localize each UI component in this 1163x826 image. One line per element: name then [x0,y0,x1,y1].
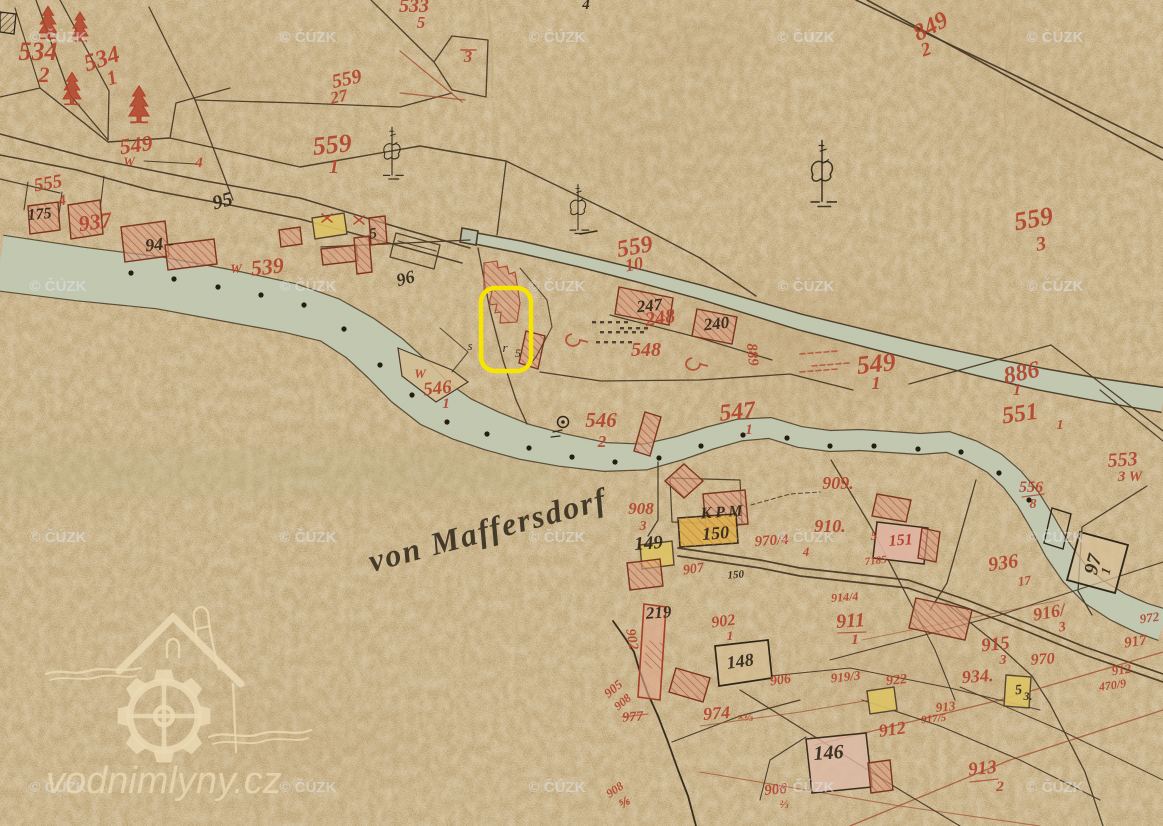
svg-text:936: 936 [987,550,1020,576]
svg-text:© ČÚZK: © ČÚZK [529,28,586,46]
svg-text:3: 3 [999,653,1007,668]
svg-text:© ČÚZK: © ČÚZK [1027,528,1084,546]
svg-text:972: 972 [1139,609,1161,627]
svg-text:915: 915 [980,633,1011,657]
svg-text:914/4: 914/4 [831,589,859,605]
svg-text:© ČÚZK: © ČÚZK [1027,277,1084,295]
svg-text:5: 5 [871,528,878,543]
svg-text:907: 907 [682,561,706,579]
svg-text:889: 889 [743,343,761,367]
svg-text:551: 551 [1000,399,1039,430]
svg-text:2: 2 [995,779,1004,795]
svg-text:×⅓: ×⅓ [737,710,753,724]
svg-text:970: 970 [1030,650,1055,669]
svg-text:© ČÚZK: © ČÚZK [778,28,835,46]
svg-text:© ČÚZK: © ČÚZK [280,778,337,796]
svg-text:© ČÚZK: © ČÚZK [778,778,835,796]
svg-text:1: 1 [745,422,753,438]
svg-text:546: 546 [585,408,617,432]
svg-text:2: 2 [38,62,50,87]
svg-text:s: s [467,338,472,353]
svg-text:5: 5 [417,13,426,32]
svg-text:909.: 909. [822,473,854,493]
svg-text:917: 917 [1123,632,1148,651]
svg-text:1: 1 [727,628,734,643]
svg-text:548: 548 [631,339,661,361]
svg-text:912: 912 [877,717,907,741]
svg-text:© ČÚZK: © ČÚZK [280,277,337,295]
svg-text:146: 146 [813,741,844,765]
svg-text:W: W [230,261,243,276]
svg-text:150: 150 [701,522,729,544]
svg-text:934.: 934. [961,665,994,687]
svg-text:977: 977 [622,709,645,725]
svg-text:© ČÚZK: © ČÚZK [529,277,586,295]
svg-text:539: 539 [249,252,284,280]
svg-text:K P M: K P M [699,503,744,523]
svg-text:913: 913 [967,757,998,781]
svg-text:© ČÚZK: © ČÚZK [1027,28,1084,46]
svg-text:© ČÚZK: © ČÚZK [778,277,835,295]
svg-text:912: 912 [1111,661,1133,679]
svg-text:© ČÚZK: © ČÚZK [529,528,586,546]
svg-text:1: 1 [442,396,450,412]
svg-text:© ČÚZK: © ČÚZK [30,277,87,295]
svg-text:© ČÚZK: © ČÚZK [1027,778,1084,796]
svg-text:94 -: 94 - [144,233,174,256]
svg-text:5: 5 [515,346,521,360]
svg-text:4: 4 [802,544,810,559]
svg-text:974: 974 [702,702,730,724]
svg-text:3 W: 3 W [1117,469,1144,485]
svg-text:149: 149 [634,532,664,555]
svg-text:⅔: ⅔ [780,797,789,811]
svg-text:© ČÚZK: © ČÚZK [30,528,87,546]
svg-text:1: 1 [329,156,339,178]
svg-text:W: W [123,154,136,169]
svg-text:© ČÚZK: © ČÚZK [529,778,586,796]
svg-text:911: 911 [835,609,865,633]
svg-text:219: 219 [644,602,672,623]
svg-text:906: 906 [769,672,792,690]
svg-text:vodnimlyny.cz: vodnimlyny.cz [46,760,282,802]
svg-text:10: 10 [623,253,644,276]
svg-text:148: 148 [725,649,755,673]
svg-text:3.: 3. [1023,689,1033,703]
svg-text:3: 3 [639,519,647,534]
svg-text:17: 17 [1017,572,1032,589]
svg-text:240: 240 [702,313,731,335]
svg-text:922: 922 [885,672,907,689]
svg-text:2: 2 [597,432,607,451]
svg-text:556: 556 [1019,479,1043,496]
svg-text:151: 151 [888,531,913,550]
svg-text:919/3: 919/3 [830,667,862,685]
svg-text:© ČÚZK: © ČÚZK [778,528,835,546]
svg-text:© ČÚZK: © ČÚZK [280,528,337,546]
svg-text:937: 937 [77,207,114,236]
svg-text:1: 1 [1057,418,1064,433]
svg-text:4: 4 [581,0,590,13]
svg-text:908: 908 [628,499,654,518]
svg-text:4: 4 [194,155,203,171]
svg-text:1: 1 [872,373,881,393]
svg-text:© ČÚZK: © ČÚZK [280,28,337,46]
svg-text:248: 248 [643,305,677,331]
svg-text:1: 1 [851,632,859,648]
svg-text:1: 1 [1013,380,1022,399]
svg-text:7185: 7185 [864,554,888,568]
svg-text:© ČÚZK: © ČÚZK [30,28,87,46]
svg-text:150: 150 [727,568,745,581]
svg-text:8: 8 [1030,497,1037,512]
svg-text:175: 175 [27,205,52,224]
